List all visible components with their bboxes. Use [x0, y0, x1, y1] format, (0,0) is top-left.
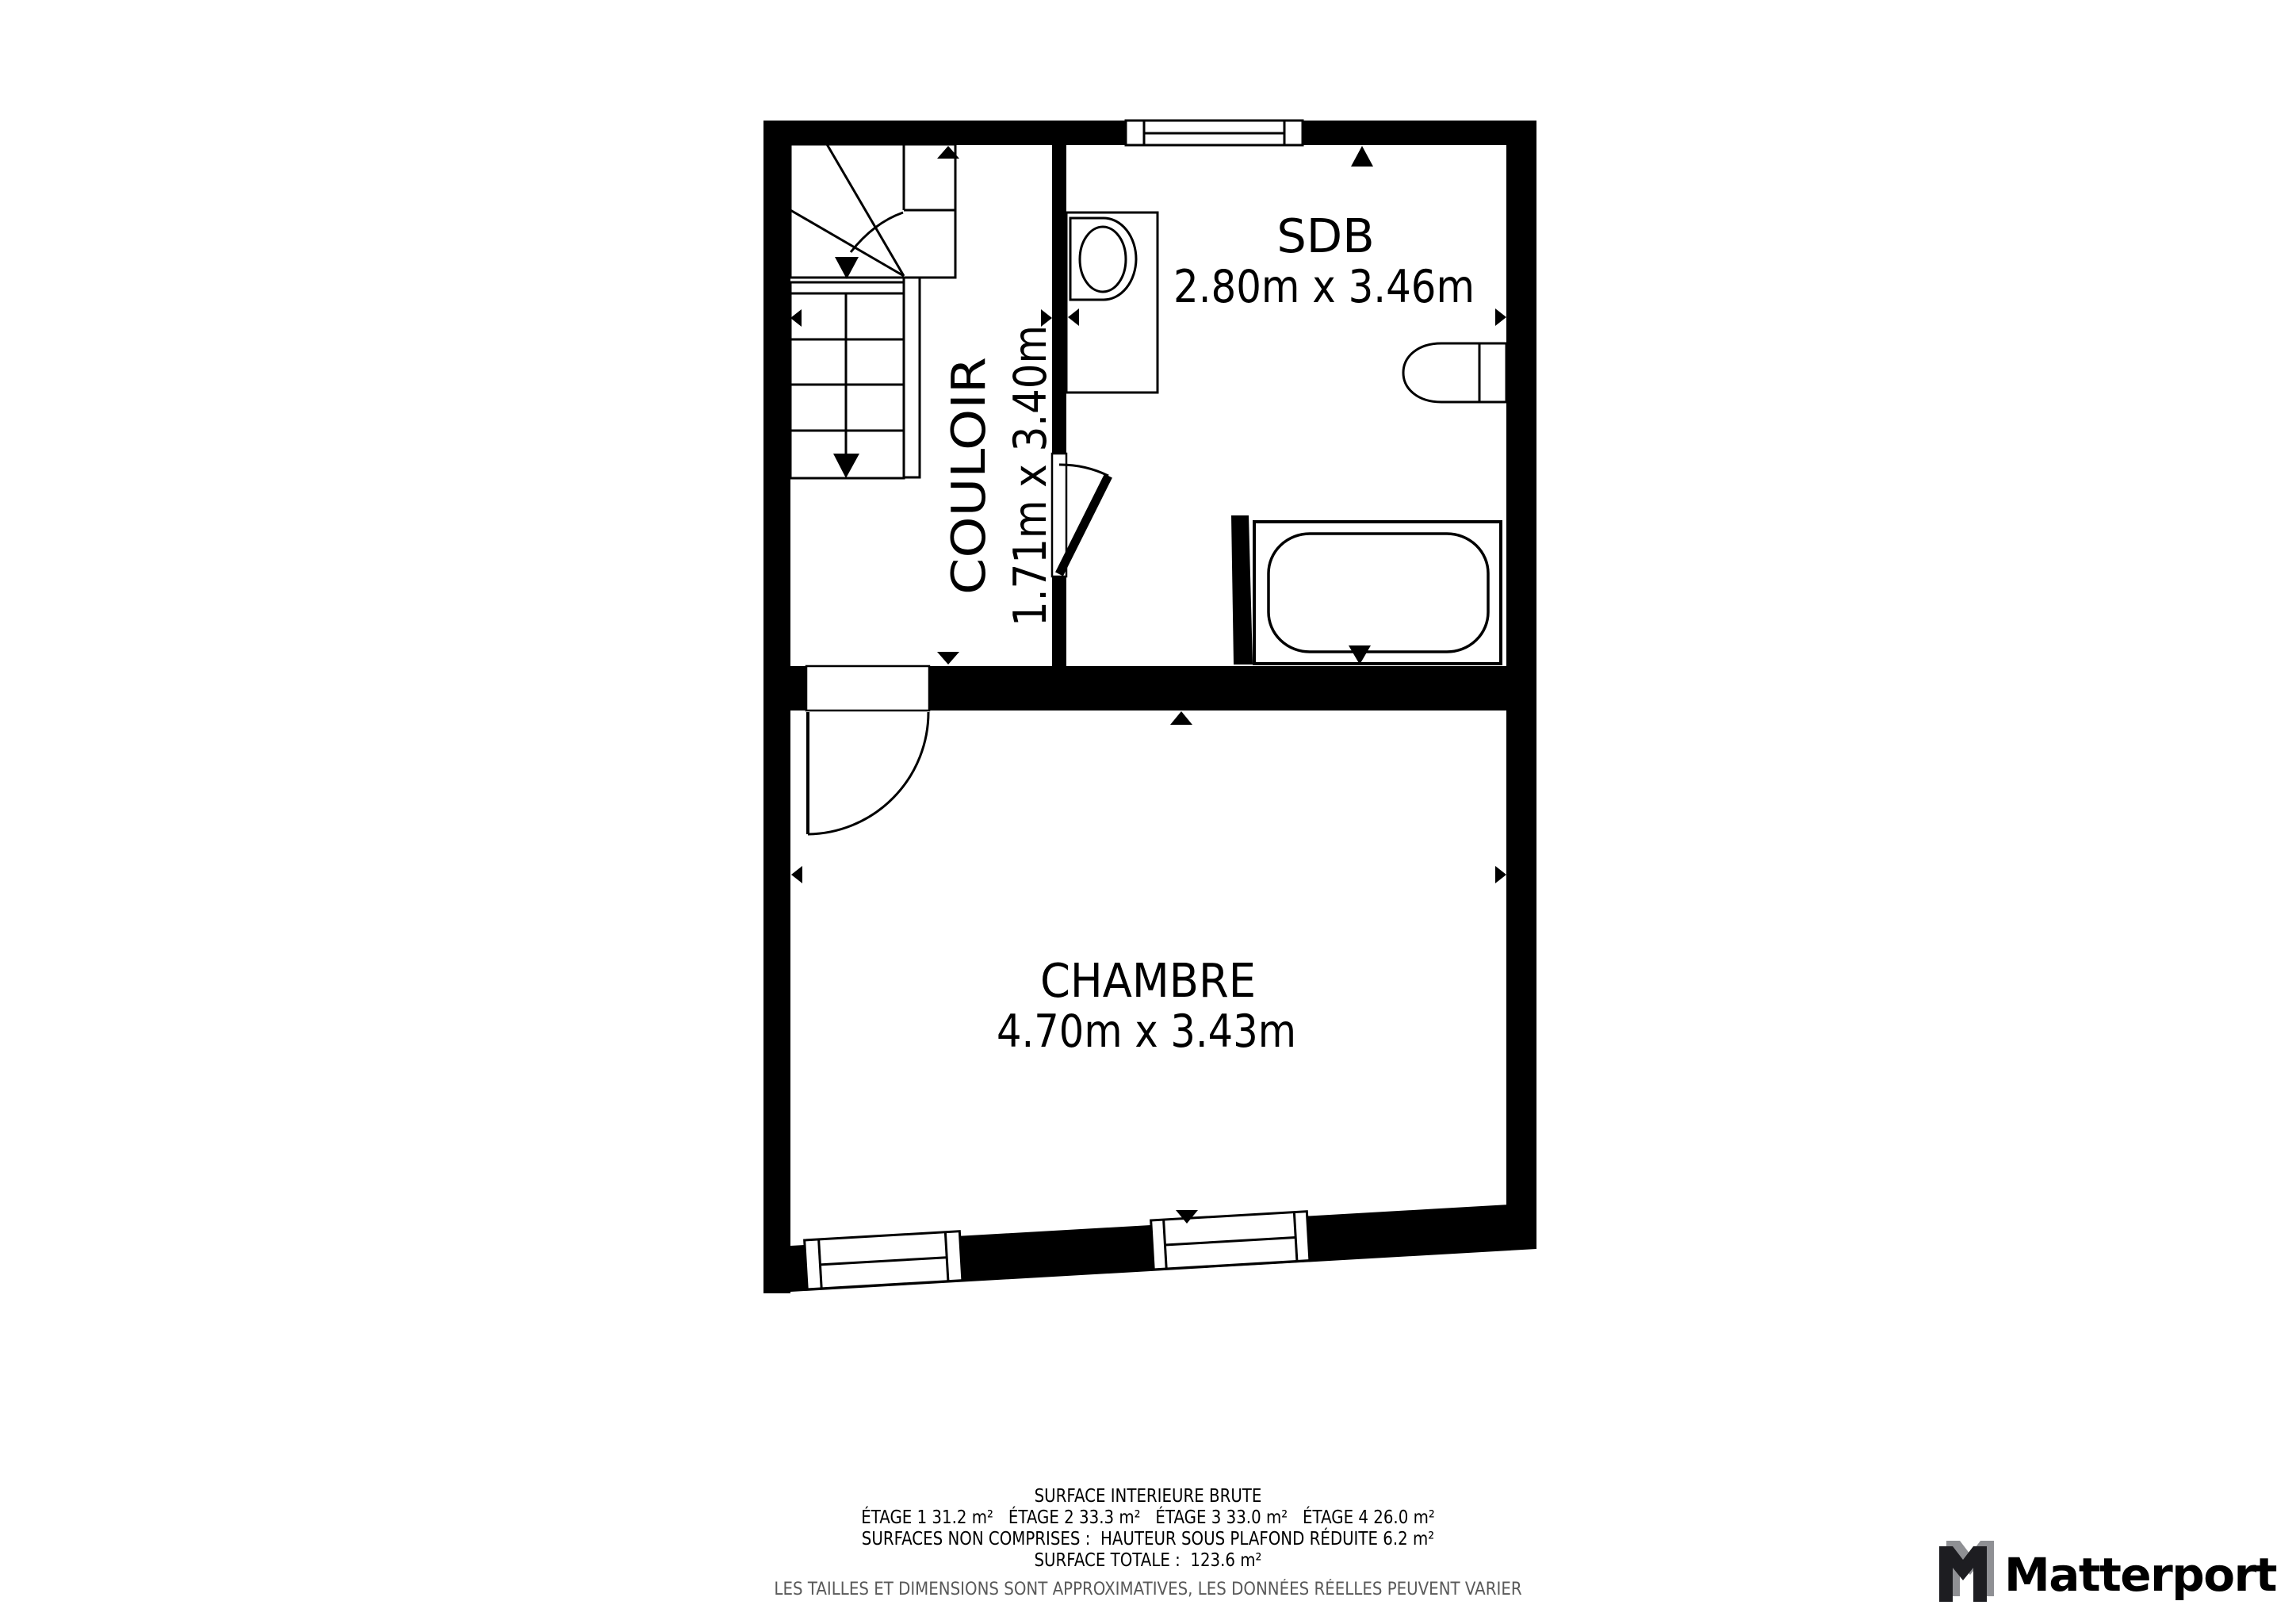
room-name-sdb: SDB [1276, 209, 1374, 263]
surface-floors: ÉTAGE 1 31.2 m² ÉTAGE 2 33.3 m² ÉTAGE 3 … [161, 1507, 2136, 1529]
floorplan-page: COULOIR 1.71m x 3.40m SDB 2.80m x 3.46m … [0, 0, 2296, 1624]
wall-top-right-segment [1303, 121, 1536, 145]
surface-title: SURFACE INTERIEURE BRUTE [161, 1486, 2136, 1507]
window-icon-bottom-left [805, 1231, 962, 1289]
wall-mid-right-segment [929, 666, 1506, 710]
surface-disclaimer: LES TAILLES ET DIMENSIONS SONT APPROXIMA… [115, 1579, 2181, 1600]
surface-excluded: SURFACES NON COMPRISES : HAUTEUR SOUS PL… [161, 1529, 2136, 1550]
wall-left [763, 121, 790, 1293]
wall-mid-left-segment [790, 666, 806, 710]
floorplan-drawing: COULOIR 1.71m x 3.40m SDB 2.80m x 3.46m … [0, 0, 2296, 1624]
room-name-couloir: COULOIR [941, 357, 996, 595]
room-chambre: CHAMBRE 4.70m x 3.43m [997, 953, 1296, 1058]
room-dimensions-couloir: 1.71m x 3.40m [1004, 325, 1057, 626]
room-name-chambre: CHAMBRE [1040, 953, 1256, 1008]
surface-summary: SURFACE INTERIEURE BRUTE ÉTAGE 1 31.2 m²… [0, 1486, 2296, 1600]
sink-icon [1066, 213, 1158, 393]
room-dimensions-sdb: 2.80m x 3.46m [1173, 261, 1475, 313]
window-icon-bottom-center [1151, 1212, 1310, 1270]
bathtub-icon [1254, 522, 1501, 664]
surface-total: SURFACE TOTALE : 123.6 m² [161, 1550, 2136, 1572]
room-dimensions-chambre: 4.70m x 3.43m [997, 1005, 1296, 1058]
toilet-icon [1403, 343, 1506, 402]
window-icon-top [1126, 121, 1303, 145]
wall-right [1506, 121, 1536, 1249]
wall-top-left-segment [763, 121, 1126, 145]
